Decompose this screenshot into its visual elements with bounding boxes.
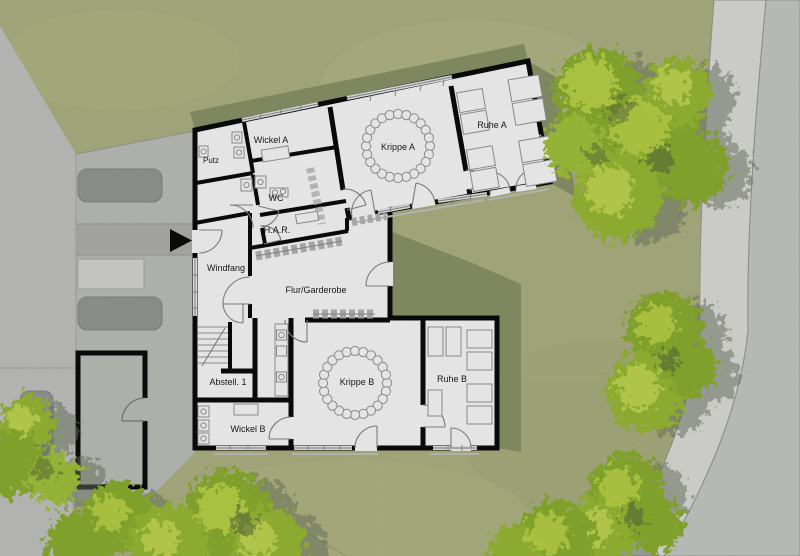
site-plan-drawing: Putz Wickel A WC H.A.R. Windfang Flur/Ga… bbox=[0, 0, 800, 556]
texture-overlay bbox=[0, 0, 800, 556]
site-plan: Putz Wickel A WC H.A.R. Windfang Flur/Ga… bbox=[0, 0, 800, 556]
